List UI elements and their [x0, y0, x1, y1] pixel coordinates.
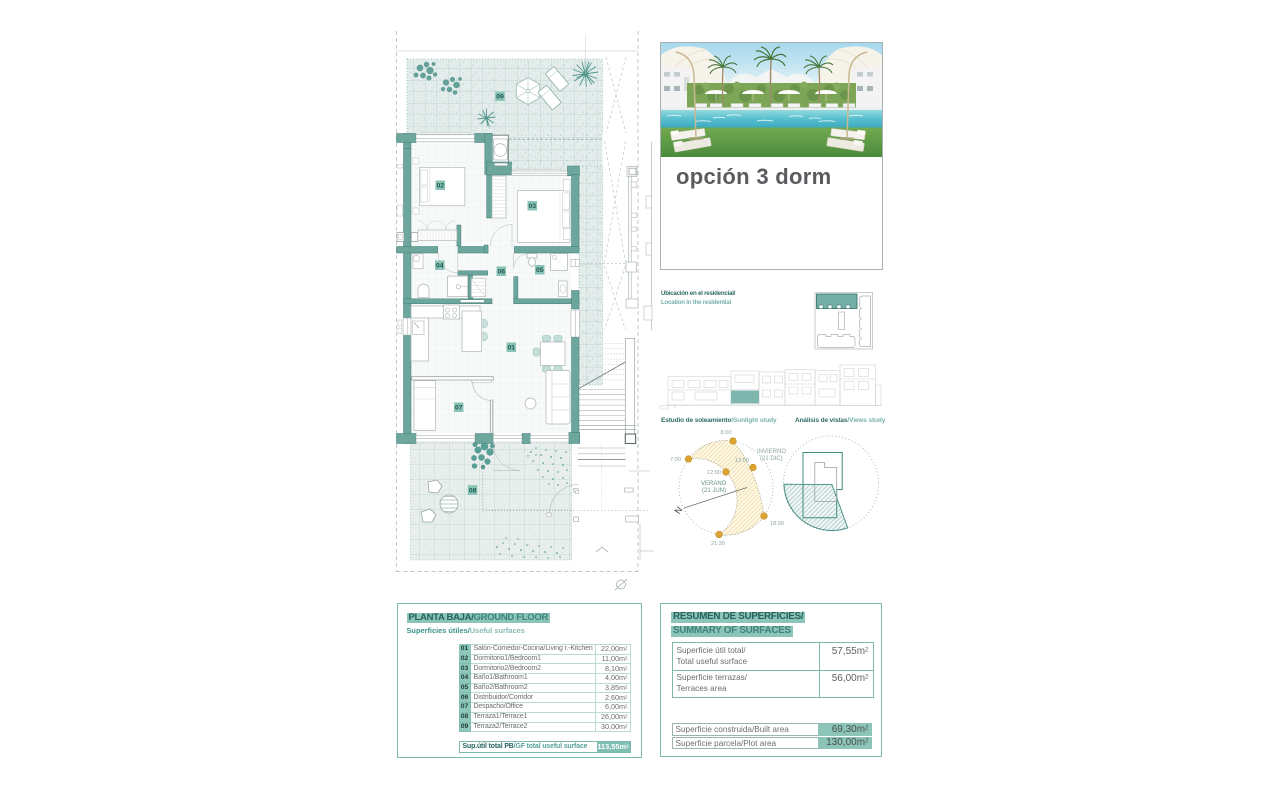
- svg-text:01: 01: [508, 345, 516, 352]
- svg-text:18:00: 18:00: [770, 521, 784, 527]
- svg-text:7:00: 7:00: [670, 457, 681, 463]
- svg-text:N: N: [672, 505, 684, 516]
- svg-text:08: 08: [469, 487, 477, 494]
- svg-text:VERANO: VERANO: [701, 481, 727, 487]
- svg-text:04: 04: [436, 263, 444, 270]
- svg-text:03: 03: [529, 203, 537, 210]
- svg-text:06: 06: [498, 269, 506, 276]
- svg-text:12:00: 12:00: [735, 458, 749, 464]
- svg-text:02: 02: [437, 183, 445, 190]
- svg-text:(21 JUN): (21 JUN): [702, 488, 726, 494]
- svg-text:05: 05: [536, 267, 544, 274]
- svg-text:INVIERNO: INVIERNO: [757, 449, 786, 455]
- svg-text:12:00: 12:00: [707, 470, 721, 476]
- svg-text:07: 07: [455, 405, 463, 412]
- svg-text:(21 DIC): (21 DIC): [760, 456, 783, 462]
- svg-text:09: 09: [496, 94, 504, 101]
- svg-text:21:30: 21:30: [711, 541, 725, 547]
- svg-text:8:00: 8:00: [721, 430, 732, 436]
